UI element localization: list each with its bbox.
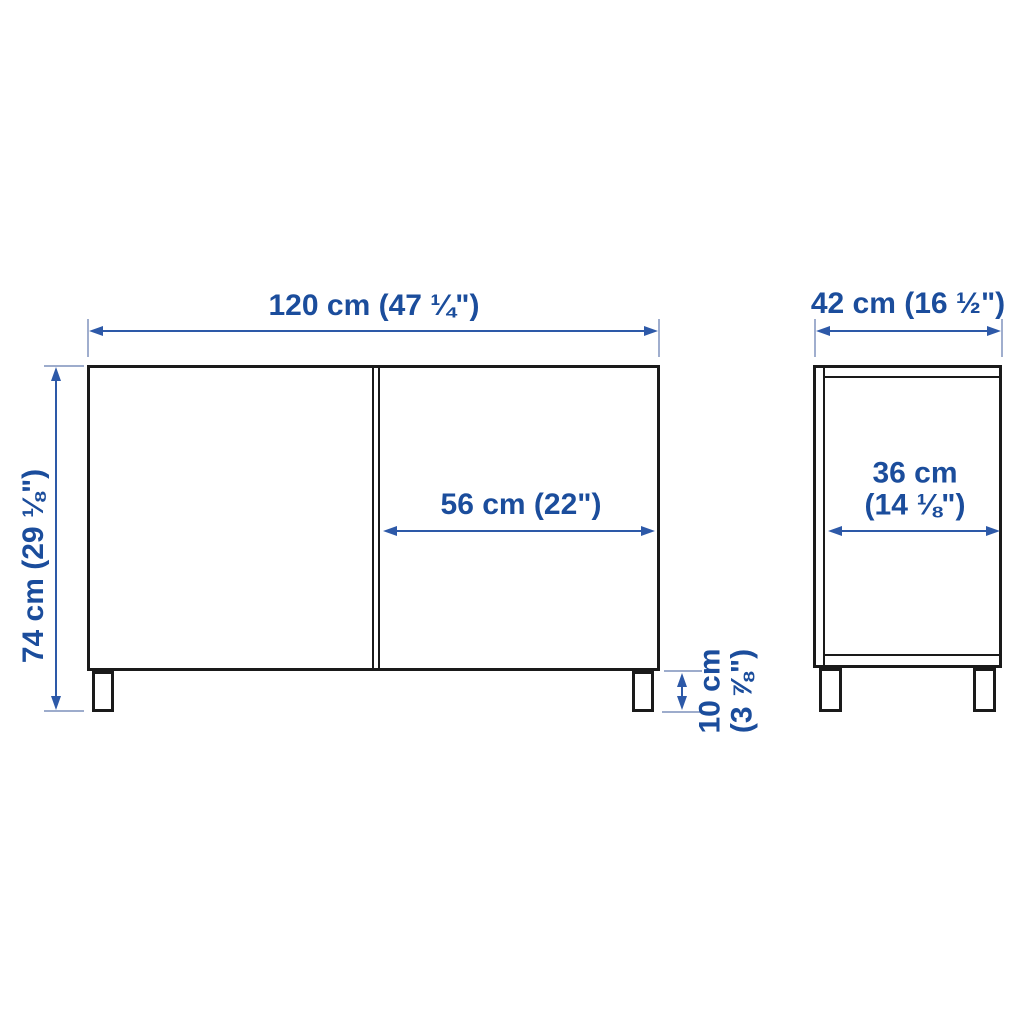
arrow-up-icon (51, 367, 61, 381)
arrow-right-icon (987, 326, 1001, 336)
side-depth-label: 42 cm (16 ½") (811, 288, 1005, 320)
inner-depth-label-line1: 36 cm (865, 458, 966, 490)
leg-height-label-line1: 10 cm (695, 648, 727, 733)
arrow-down-icon (677, 696, 687, 710)
leg-height-label: 10 cm (3 ⅞") (695, 648, 760, 733)
arrow-down-icon (51, 696, 61, 710)
side-depth-dimension-arrow (815, 319, 1002, 357)
arrow-right-icon (641, 526, 655, 536)
arrow-left-icon (828, 526, 842, 536)
front-height-label: 74 cm (29 ⅛") (18, 469, 50, 663)
arrow-left-icon (816, 326, 830, 336)
door-width-dimension-arrow (383, 526, 655, 536)
arrow-left-icon (89, 326, 103, 336)
inner-depth-label-line2: (14 ⅛") (865, 490, 966, 522)
arrow-up-icon (677, 673, 687, 687)
door-width-label: 56 cm (22") (441, 489, 602, 521)
inner-depth-label: 36 cm (14 ⅛") (865, 458, 966, 523)
inner-depth-dimension-arrow (828, 526, 1000, 536)
arrow-right-icon (644, 326, 658, 336)
front-width-dimension-arrow (88, 319, 659, 357)
leg-height-label-line2: (3 ⅞") (727, 648, 759, 733)
arrow-left-icon (383, 526, 397, 536)
front-width-label: 120 cm (47 ¼") (268, 290, 479, 322)
dimension-diagram: 120 cm (47 ¼") 42 cm (16 ½") 74 cm (29 ⅛… (0, 0, 1024, 1024)
arrow-right-icon (986, 526, 1000, 536)
